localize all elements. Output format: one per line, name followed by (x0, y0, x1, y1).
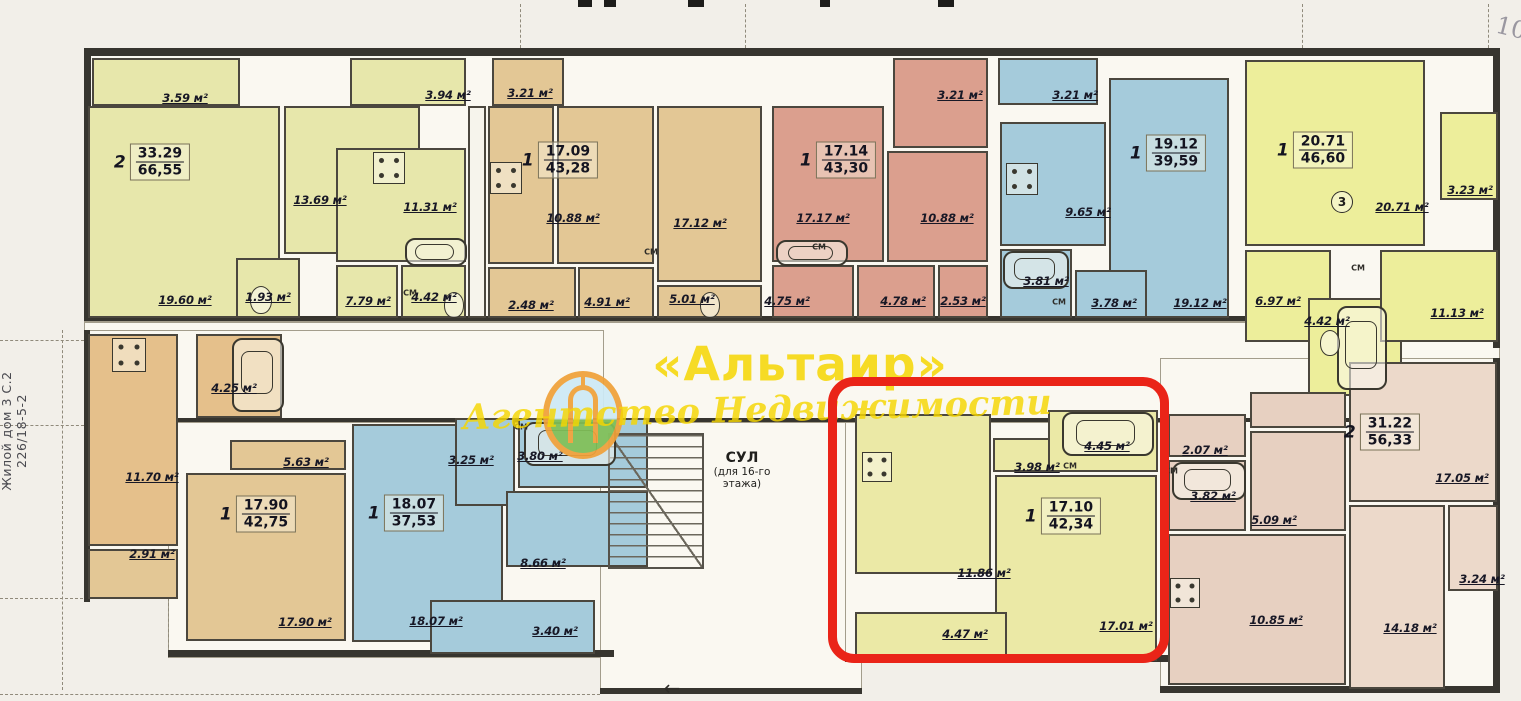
stamp-room-count: 1 (1277, 140, 1289, 160)
room-area-label: 11.70 м² (125, 470, 178, 484)
room-area-label: 4.75 м² (764, 294, 809, 308)
left-margin-note-line2: 226/18-5-2 (14, 355, 29, 507)
grid-dash-line (745, 4, 746, 48)
room-area-label: 11.31 м² (403, 200, 456, 214)
stamp-areas-box: 20.7146,60 (1293, 132, 1353, 169)
room-area-label: 11.13 м² (1430, 306, 1483, 320)
room-area-label: 3.80 м² (517, 449, 562, 463)
stamp-total-area: 37,53 (390, 514, 438, 530)
stove-icon (490, 162, 522, 194)
apartment-stamp: 231.2256,33 (1344, 414, 1420, 451)
stamp-room-count: 1 (368, 503, 380, 523)
stamp-room-count: 1 (220, 504, 232, 524)
stairwell-title: СУЛ (714, 450, 771, 466)
scan-artifact (938, 0, 954, 7)
stamp-areas-box: 19.1239,59 (1146, 135, 1206, 172)
grid-dash-line (0, 598, 88, 599)
room-area-label: 17.05 м² (1435, 471, 1488, 485)
grid-dash-line (520, 4, 521, 48)
left-margin-note-line1: Жилой дом 3 С.2 (0, 355, 14, 507)
apartment-stamp: 117.9042,75 (220, 496, 296, 533)
room-area-label: 2.53 м² (940, 294, 985, 308)
room-area-label: 17.90 м² (278, 615, 331, 629)
apartment-stamp: 233.2966,55 (114, 144, 190, 181)
scan-artifact (578, 0, 592, 7)
room-area-label: 8.66 м² (520, 556, 565, 570)
door-number-badge: 3 (1331, 191, 1353, 213)
hall-block (336, 265, 398, 318)
room-block (1349, 505, 1445, 689)
room-area-label: 19.60 м² (158, 293, 211, 307)
room-area-label: 3.78 м² (1091, 296, 1136, 310)
room-block (772, 106, 884, 262)
room-area-label: 17.17 м² (796, 211, 849, 225)
tub-icon (232, 338, 284, 412)
room-area-label: 9.65 м² (1065, 205, 1110, 219)
highlight-rectangle (828, 377, 1169, 663)
stamp-total-area: 66,55 (136, 163, 184, 179)
room-area-label: 13.69 м² (293, 193, 346, 207)
room-area-label: 4.42 м² (1304, 314, 1349, 328)
grid-dash-line (168, 598, 169, 658)
stamp-living-area: 19.12 (1152, 137, 1200, 154)
scan-artifact (604, 0, 616, 7)
closet-label: СМ (644, 248, 658, 257)
room-area-label: 3.21 м² (937, 88, 982, 102)
kitchen-block (1380, 250, 1498, 342)
room-area-label: 6.97 м² (1255, 294, 1300, 308)
wall (1160, 686, 1500, 693)
stamp-total-area: 56,33 (1366, 433, 1414, 449)
room-area-label: 10.85 м² (1249, 613, 1302, 627)
closet-label: СМ (403, 289, 417, 298)
room-block (557, 106, 654, 264)
stamp-areas-box: 17.9042,75 (236, 496, 296, 533)
stamp-room-count: 1 (800, 150, 812, 170)
stamp-areas-box: 31.2256,33 (1360, 414, 1420, 451)
room-area-label: 4.91 м² (584, 295, 629, 309)
stamp-room-count: 1 (1130, 143, 1142, 163)
stamp-room-count: 2 (114, 152, 126, 172)
stamp-room-count: 2 (1344, 422, 1356, 442)
stamp-living-area: 17.14 (822, 144, 870, 161)
page-number-note: 10 (1493, 11, 1521, 46)
stairs (608, 433, 704, 569)
wc-icon (1320, 330, 1340, 356)
closet-label: СМ (1052, 298, 1066, 307)
room-area-label: 20.71 м² (1375, 200, 1428, 214)
bathroom-block (772, 265, 854, 318)
stove-icon (1170, 578, 1200, 608)
apartment-stamp: 118.0737,53 (368, 495, 444, 532)
apartment-stamp: 120.7146,60 (1277, 132, 1353, 169)
room-area-label: 10.88 м² (546, 211, 599, 225)
room-area-label: 3.81 м² (1023, 274, 1068, 288)
room-area-label: 2.07 м² (1182, 443, 1227, 457)
grid-dash-line (62, 330, 63, 690)
entrance-arrow: ← (664, 676, 681, 700)
kitchen-block (1168, 534, 1346, 685)
grid-dash-line (1302, 4, 1303, 48)
room-area-label: 5.01 м² (669, 292, 714, 306)
room-area-label: 7.79 м² (345, 294, 390, 308)
stamp-total-area: 42,75 (242, 515, 290, 531)
room-area-label: 3.21 м² (1052, 88, 1097, 102)
stamp-areas-box: 17.0943,28 (538, 142, 598, 179)
shaft-block (468, 106, 486, 318)
stamp-living-area: 31.22 (1366, 416, 1414, 433)
room-area-label: 14.18 м² (1383, 621, 1436, 635)
room-area-label: 17.12 м² (673, 216, 726, 230)
stairwell-subtitle-line1: (для 16-го (714, 466, 771, 478)
balcony-block (893, 58, 988, 148)
stamp-areas-box: 18.0737,53 (384, 495, 444, 532)
stamp-living-area: 17.09 (544, 144, 592, 161)
hall-block (1075, 270, 1147, 318)
stamp-living-area: 17.90 (242, 498, 290, 515)
scan-artifact (688, 0, 704, 7)
room-area-label: 3.24 м² (1459, 572, 1504, 586)
room-area-label: 3.25 м² (448, 453, 493, 467)
stamp-living-area: 18.07 (390, 497, 438, 514)
tub-icon (405, 238, 467, 266)
stove-icon (112, 338, 146, 372)
room-area-label: 4.78 м² (880, 294, 925, 308)
stamp-total-area: 43,28 (544, 161, 592, 177)
room-area-label: 3.59 м² (162, 91, 207, 105)
apartment-stamp: 117.1443,30 (800, 142, 876, 179)
room-area-label: 3.21 м² (507, 86, 552, 100)
stamp-living-area: 20.71 (1299, 134, 1347, 151)
stamp-living-area: 33.29 (136, 146, 184, 163)
stamp-total-area: 43,30 (822, 161, 870, 177)
room-area-label: 18.07 м² (409, 614, 462, 628)
kitchen-block (887, 151, 988, 262)
scan-artifact (820, 0, 830, 7)
room-area-label: 2.91 м² (129, 547, 174, 561)
room-area-label: 19.12 м² (1173, 296, 1226, 310)
room-area-label: 3.40 м² (532, 624, 577, 638)
hall-block (938, 265, 988, 318)
grid-dash-line (1488, 4, 1489, 48)
left-margin-note: Жилой дом 3 С.2 226/18-5-2 (0, 355, 37, 507)
room-area-label: 5.63 м² (283, 455, 328, 469)
stairwell-subtitle-line2: этажа) (714, 478, 771, 490)
hall-block (857, 265, 935, 318)
wall (84, 48, 1500, 56)
room-area-label: 2.48 м² (508, 298, 553, 312)
apartment-stamp: 117.0943,28 (522, 142, 598, 179)
stove-icon (373, 152, 405, 184)
hall-block (1250, 392, 1346, 428)
closet-label: СМ (812, 243, 826, 252)
room-area-label: 4.42 м² (411, 290, 456, 304)
stamp-areas-box: 33.2966,55 (130, 144, 190, 181)
grid-dash-line (0, 694, 600, 695)
room-area-label: 1.93 м² (245, 290, 290, 304)
room-area-label: 4.25 м² (211, 381, 256, 395)
room-area-label: 3.94 м² (425, 88, 470, 102)
room-area-label: 10.88 м² (920, 211, 973, 225)
apartment-stamp: 119.1239,59 (1130, 135, 1206, 172)
room-block (657, 106, 762, 282)
floor-plan: Жилой дом 3 С.2 226/18-5-2 10 «Альтаир» … (0, 0, 1521, 701)
stamp-areas-box: 17.1443,30 (816, 142, 876, 179)
grid-dash-line (0, 340, 84, 341)
closet-label: СМ (1351, 264, 1365, 273)
hall-block (578, 267, 654, 318)
stove-icon (1006, 163, 1038, 195)
wall (600, 688, 862, 694)
stamp-room-count: 1 (522, 150, 534, 170)
room-area-label: 5.09 м² (1251, 513, 1296, 527)
stairwell-label: СУЛ (для 16-го этажа) (714, 450, 771, 490)
stamp-total-area: 46,60 (1299, 151, 1347, 167)
room-area-label: 3.23 м² (1447, 183, 1492, 197)
stamp-total-area: 39,59 (1152, 154, 1200, 170)
room-area-label: 3.82 м² (1190, 489, 1235, 503)
